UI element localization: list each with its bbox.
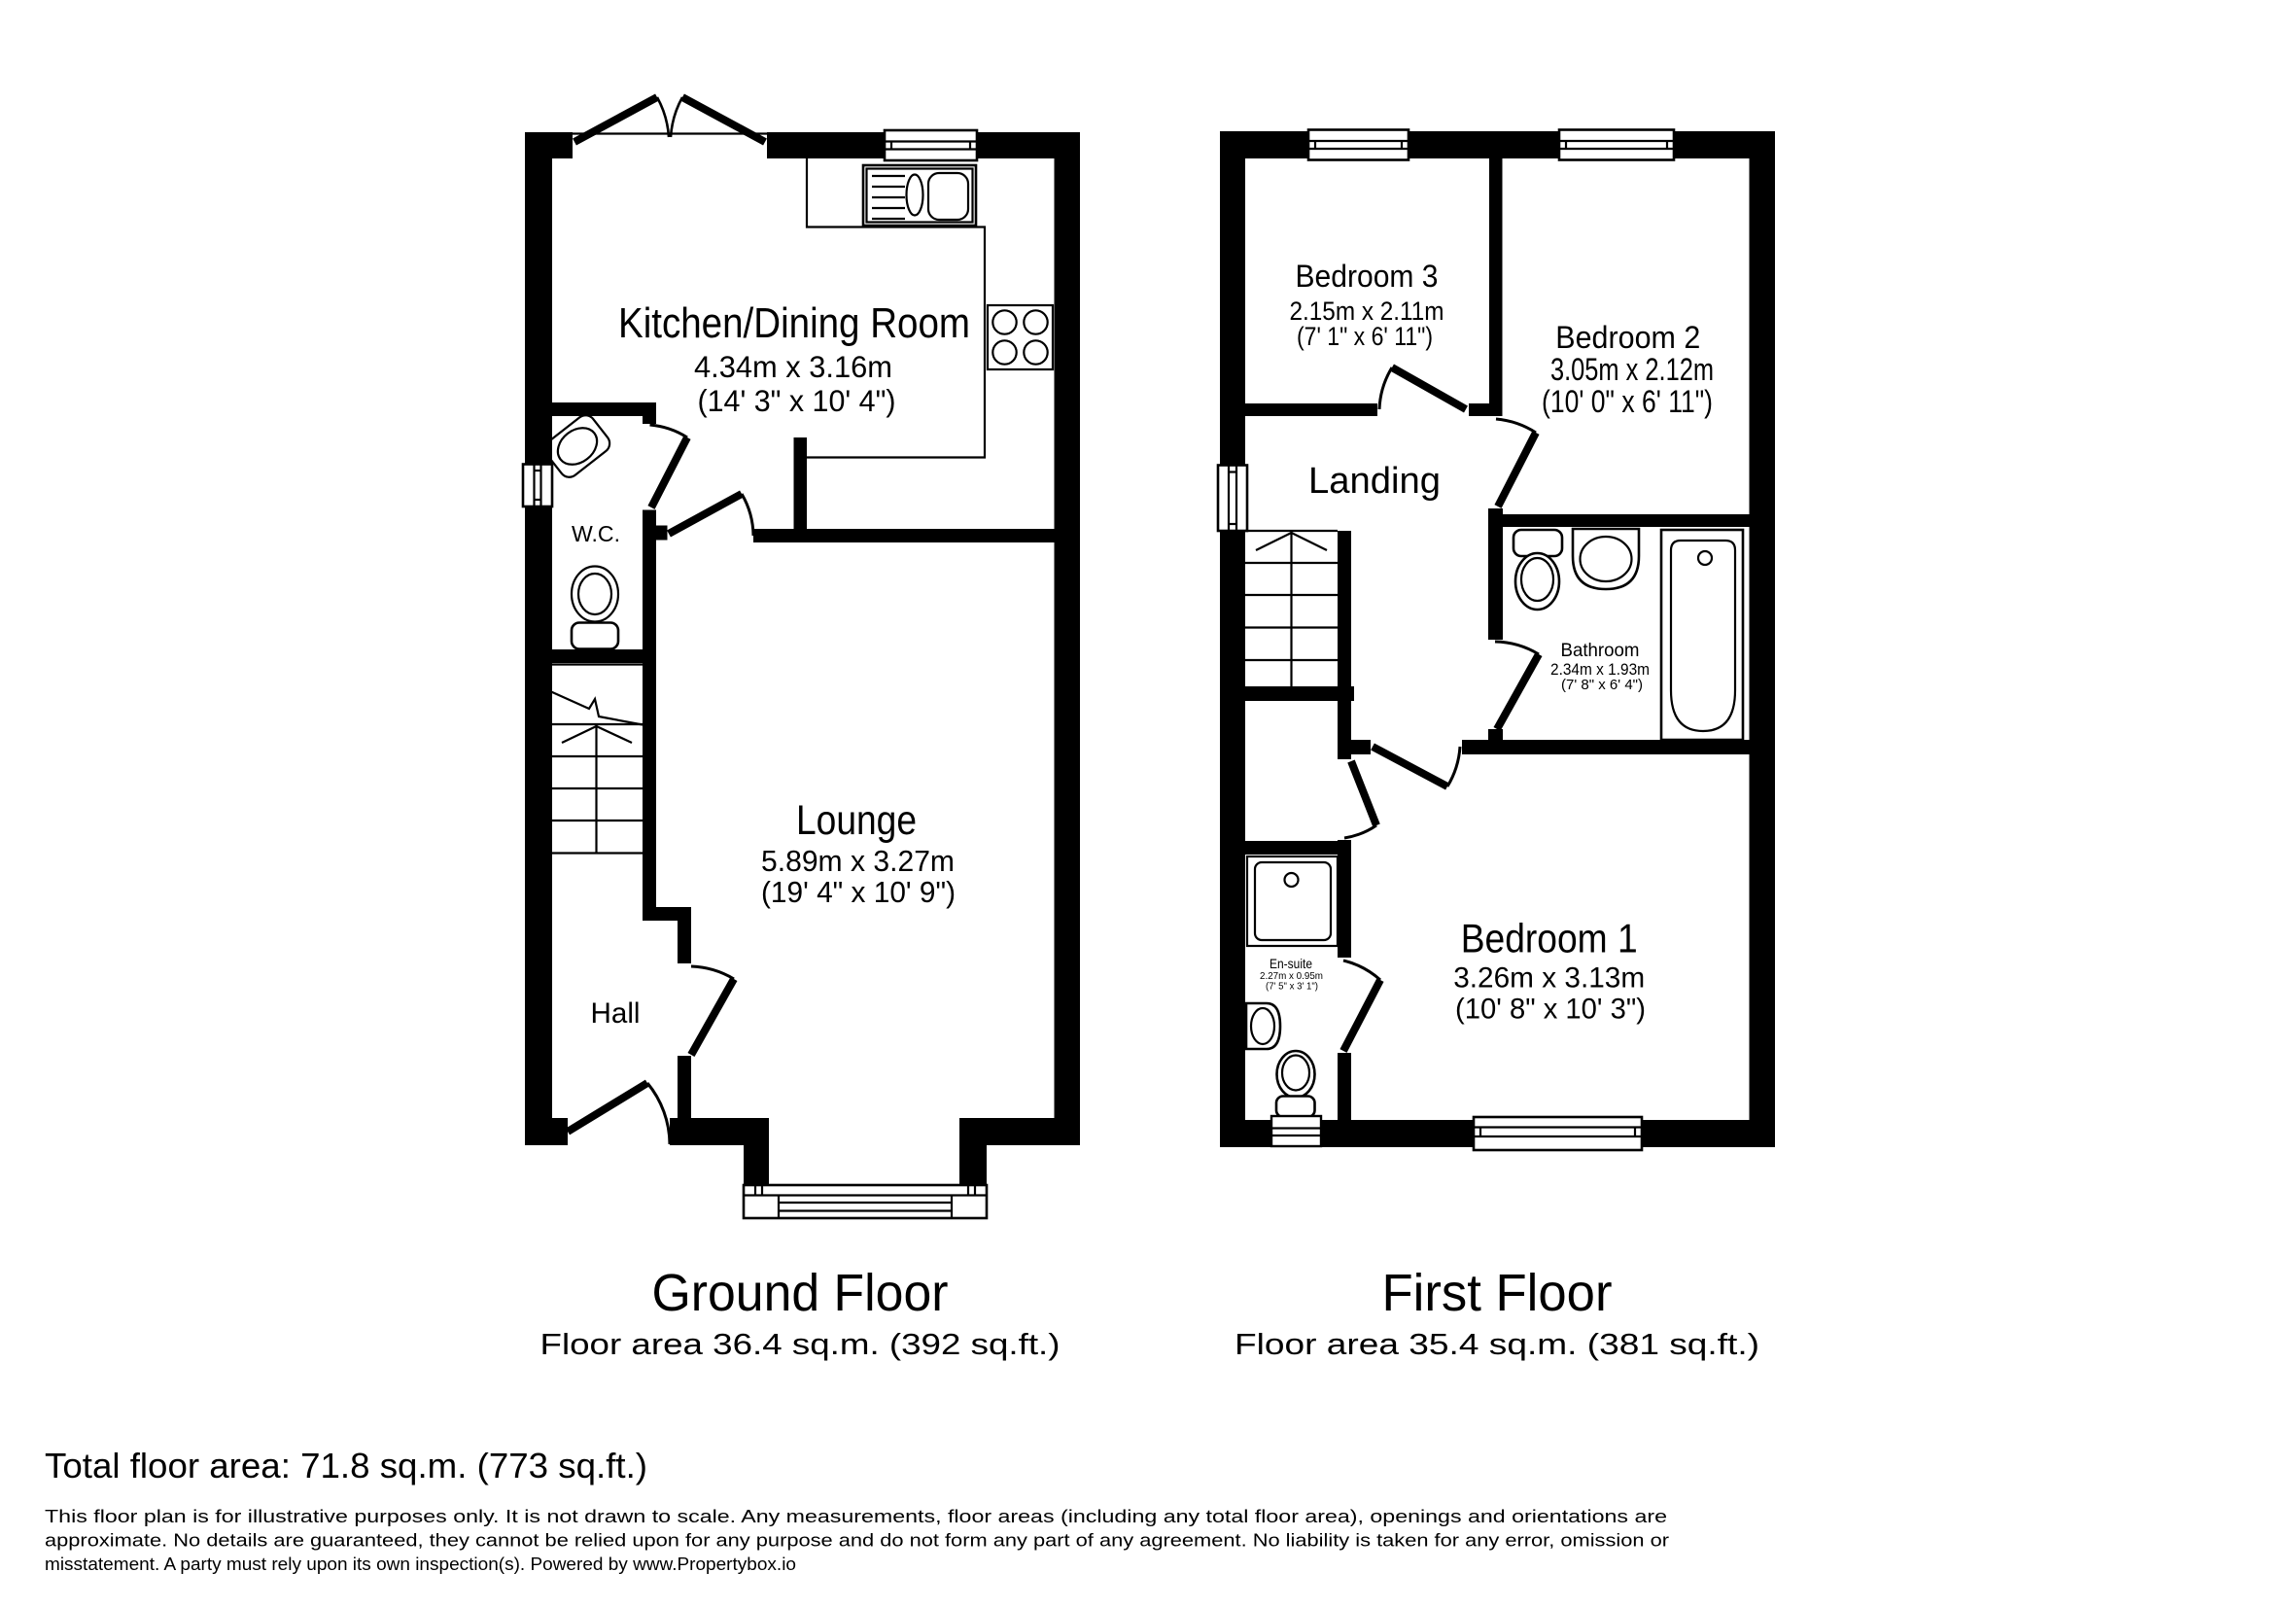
svg-text:This floor plan is for illustr: This floor plan is for illustrative purp… xyxy=(45,1507,1667,1526)
svg-text:Bedroom 1: Bedroom 1 xyxy=(1461,916,1638,961)
svg-text:(10' 0" x 6' 11"): (10' 0" x 6' 11") xyxy=(1542,384,1713,419)
svg-text:Kitchen/Dining Room: Kitchen/Dining Room xyxy=(618,299,970,347)
svg-text:5.89m x 3.27m: 5.89m x 3.27m xyxy=(761,844,955,878)
svg-text:Bathroom: Bathroom xyxy=(1561,640,1640,661)
svg-text:4.34m x 3.16m: 4.34m x 3.16m xyxy=(694,349,892,384)
svg-text:(14' 3" x 10' 4"): (14' 3" x 10' 4") xyxy=(698,383,896,418)
svg-text:En-suite: En-suite xyxy=(1270,956,1312,971)
svg-text:(7' 5" x 3' 1"): (7' 5" x 3' 1") xyxy=(1266,981,1318,993)
svg-text:Lounge: Lounge xyxy=(796,798,917,844)
svg-text:(10' 8" x 10' 3"): (10' 8" x 10' 3") xyxy=(1455,994,1646,1026)
svg-text:Ground Floor: Ground Floor xyxy=(652,1264,949,1322)
svg-text:First Floor: First Floor xyxy=(1382,1264,1613,1322)
svg-text:Total floor area: 71.8 sq.m. (: Total floor area: 71.8 sq.m. (773 sq.ft.… xyxy=(45,1446,647,1485)
svg-text:Floor area 36.4 sq.m. (392 sq.: Floor area 36.4 sq.m. (392 sq.ft.) xyxy=(540,1327,1061,1361)
svg-text:3.26m x 3.13m: 3.26m x 3.13m xyxy=(1453,962,1645,995)
svg-text:Bedroom 3: Bedroom 3 xyxy=(1296,259,1439,294)
svg-text:W.C.: W.C. xyxy=(572,521,620,546)
svg-text:(7' 1" x 6' 11"): (7' 1" x 6' 11") xyxy=(1297,322,1433,351)
svg-text:approximate. No details are gu: approximate. No details are guaranteed, … xyxy=(45,1531,1669,1551)
svg-text:misstatement. A party must rel: misstatement. A party must rely upon its… xyxy=(45,1555,796,1574)
svg-text:(7' 8" x 6' 4"): (7' 8" x 6' 4") xyxy=(1561,677,1643,693)
svg-text:Hall: Hall xyxy=(591,997,641,1030)
svg-text:Floor area 35.4 sq.m. (381 sq.: Floor area 35.4 sq.m. (381 sq.ft.) xyxy=(1235,1327,1759,1361)
svg-text:3.05m x 2.12m: 3.05m x 2.12m xyxy=(1550,352,1714,387)
svg-text:Landing: Landing xyxy=(1308,461,1441,502)
svg-text:Bedroom 2: Bedroom 2 xyxy=(1555,320,1700,355)
svg-text:(19' 4" x 10' 9"): (19' 4" x 10' 9") xyxy=(761,875,956,909)
